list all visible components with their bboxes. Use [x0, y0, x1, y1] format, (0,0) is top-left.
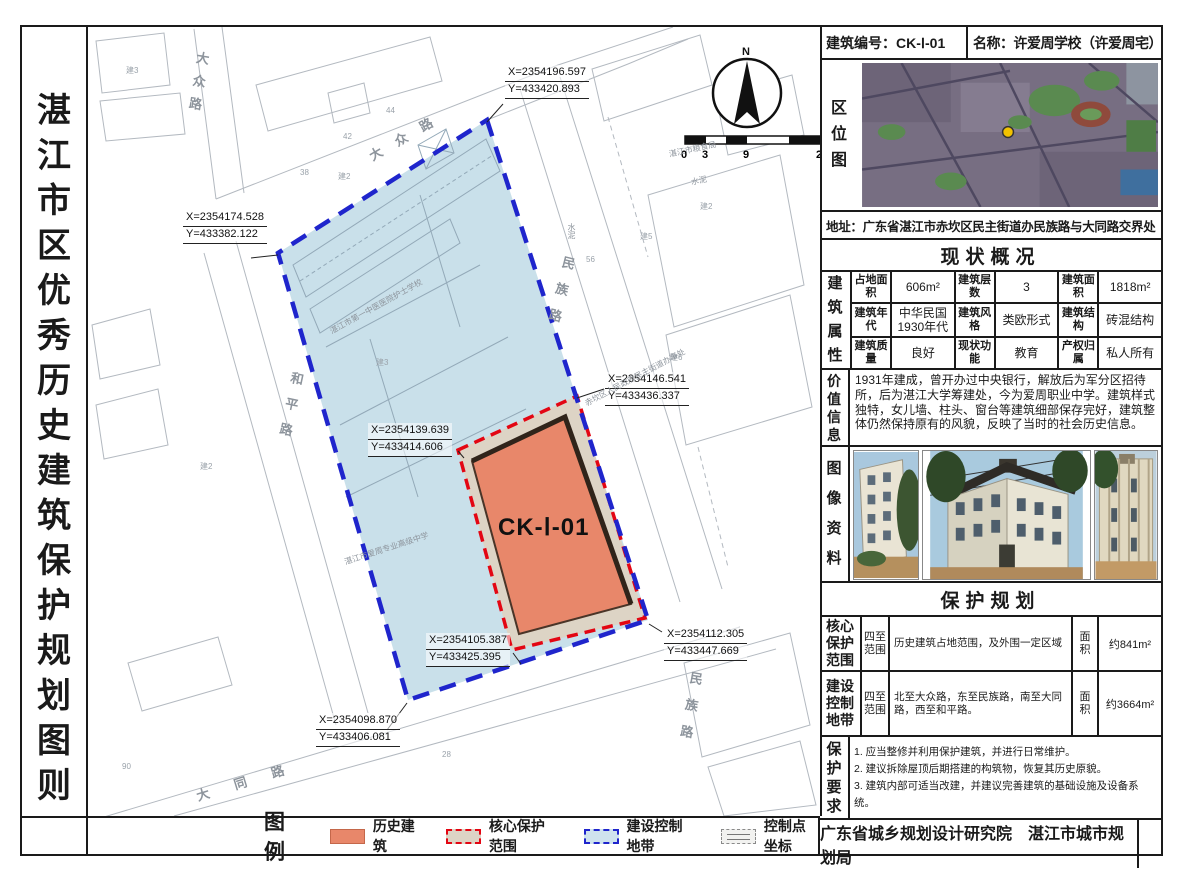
legend-item-core: 核心保护范围	[446, 816, 554, 856]
core-protection-swatch	[446, 829, 481, 844]
attr-label: 建筑面积	[1057, 272, 1097, 302]
svg-text:N: N	[742, 46, 750, 58]
coord-x: X=2354105.387	[426, 633, 510, 650]
attr-value: 1818m²	[1097, 272, 1161, 302]
north-arrow-icon: N	[713, 46, 781, 127]
coord-x: X=2354196.597	[505, 65, 589, 82]
attributes-grid: 占地面积 606m² 建筑层数 3 建筑面积 1818m² 建筑年代 中华民国1…	[850, 272, 1161, 368]
coord-y: Y=433414.606	[368, 440, 452, 457]
attr-label: 产权归属	[1057, 336, 1097, 368]
building-photo-3	[1094, 450, 1158, 580]
svg-text:90: 90	[122, 762, 131, 771]
status-title-row: 现状概况	[820, 240, 1161, 272]
control-zone-row: 建设控制地带 四至范围 北至大众路，东至民族路，南至大同路，西至和平路。 面积 …	[820, 672, 1161, 737]
footer-row: 广东省城乡规划设计研究院 湛江市城市规划局	[820, 820, 1161, 868]
svg-text:建5: 建5	[640, 231, 653, 241]
svg-text:建3: 建3	[376, 357, 389, 367]
attr-value: 类欧形式	[994, 302, 1058, 336]
attr-label: 建筑年代	[850, 302, 890, 336]
agency-names: 广东省城乡规划设计研究院 湛江市城市规划局	[820, 820, 1139, 868]
construction-control-swatch	[584, 829, 619, 844]
building-name: 名称：许爱周学校（许爱周宅）	[968, 27, 1161, 58]
legend-item-label: 核心保护范围	[489, 816, 554, 856]
core-protection-row: 核心保护范围 四至范围 历史建筑占地范围，及外围一定区域 面积 约841m²	[820, 617, 1161, 672]
svg-text:28: 28	[442, 750, 451, 759]
svg-text:建3: 建3	[126, 65, 139, 75]
title-column: 湛江市区优秀历史建筑保护规划图则	[22, 27, 88, 854]
legend-item-label: 建设控制地带	[627, 816, 692, 856]
coordinate-callout: X=2354196.597Y=433420.893	[505, 65, 589, 99]
control-area-value: 约3664m²	[1099, 672, 1161, 735]
attr-label: 建筑层数	[954, 272, 994, 302]
attributes-row: 建筑属性 占地面积 606m² 建筑层数 3 建筑面积 1818m² 建筑年代 …	[820, 272, 1161, 370]
footer-end-cell	[1139, 820, 1161, 868]
coord-y: Y=433447.669	[664, 644, 747, 661]
legend-item-label: 历史建筑	[373, 816, 416, 856]
protection-title-row: 保护规划	[820, 583, 1161, 617]
coord-y: Y=433425.395	[426, 650, 510, 667]
value-info-label: 价值信息	[820, 370, 850, 445]
building-number: 建筑编号：CK-Ⅰ-01	[820, 27, 968, 58]
coord-x: X=2354174.528	[183, 210, 267, 227]
building-photo-1	[853, 450, 919, 580]
address-row: 地址：广东省湛江市赤坎区民主街道办民族路与大同路交界处	[820, 212, 1161, 240]
svg-text:9: 9	[743, 149, 749, 161]
core-building-label: CK-Ⅰ-01	[498, 514, 589, 541]
coord-x: X=2354112.305	[664, 627, 747, 644]
attr-value: 教育	[994, 336, 1058, 368]
requirement-item: 1. 应当整修并利用保护建筑，并进行日常维护。	[854, 744, 1157, 761]
attr-value: 606m²	[890, 272, 954, 302]
images-row: 图像资料	[820, 447, 1161, 583]
coordinate-callout: X=2354139.639Y=433414.606	[368, 423, 452, 457]
legend-bar: 图例 历史建筑 核心保护范围 建设控制地带 控制点坐标	[88, 816, 820, 854]
address-text: 地址：广东省湛江市赤坎区民主街道办民族路与大同路交界处	[820, 216, 1161, 235]
attr-label: 建筑质量	[850, 336, 890, 368]
attr-label: 现状功能	[954, 336, 994, 368]
core-range-label: 四至范围	[862, 617, 890, 670]
legend-item-point: 控制点坐标	[721, 816, 818, 856]
attr-value: 砖混结构	[1097, 302, 1161, 336]
legend-item-historic: 历史建筑	[330, 816, 416, 856]
place-label-cement: 水泥	[566, 223, 577, 239]
sheet-title: 湛江市区优秀历史建筑保护规划图则	[22, 89, 86, 809]
svg-text:38: 38	[300, 168, 309, 177]
site-marker-dot	[1002, 127, 1013, 138]
status-title: 现状概况	[820, 240, 1161, 270]
core-area-value: 约841m²	[1099, 617, 1161, 670]
coord-x: X=2354139.639	[368, 423, 452, 440]
images-label: 图像资料	[820, 447, 850, 581]
attr-label: 建筑风格	[954, 302, 994, 336]
coord-y: Y=433420.893	[505, 82, 589, 99]
coordinate-callout: X=2354105.387Y=433425.395	[426, 633, 510, 667]
value-info-row: 价值信息 1931年建成，曾开办过中央银行，解放后为军分区招待所，后为湛江大学筹…	[820, 370, 1161, 447]
legend-item-control: 建设控制地带	[584, 816, 692, 856]
svg-text:42: 42	[343, 132, 352, 141]
map-canvas: CK-Ⅰ-01 N 0 3 9 21m 建3 建2	[88, 27, 822, 816]
coordinate-callout: X=2354112.305Y=433447.669	[664, 627, 747, 661]
core-range-text: 历史建筑占地范围，及外围一定区域	[890, 617, 1073, 670]
attr-label: 占地面积	[850, 272, 890, 302]
requirements-row: 保护要求 1. 应当整修并利用保护建筑，并进行日常维护。 2. 建议拆除屋顶后期…	[820, 737, 1161, 820]
info-panel: 建筑编号：CK-Ⅰ-01 名称：许爱周学校（许爱周宅） 区位图	[820, 27, 1161, 854]
coordinate-callout: X=2354098.870Y=433406.081	[316, 713, 400, 747]
control-range-name: 建设控制地带	[820, 672, 862, 735]
legend-item-label: 控制点坐标	[764, 816, 818, 856]
svg-text:建2: 建2	[200, 461, 213, 471]
location-map-row: 区位图	[820, 60, 1161, 212]
coord-y: Y=433382.122	[183, 227, 267, 244]
requirements-label: 保护要求	[820, 737, 850, 818]
panel-header-row: 建筑编号：CK-Ⅰ-01 名称：许爱周学校（许爱周宅）	[820, 27, 1161, 60]
core-range-name: 核心保护范围	[820, 617, 862, 670]
value-info-text: 1931年建成，曾开办过中央银行，解放后为军分区招待所，后为湛江大学筹建处，今为…	[850, 370, 1161, 445]
svg-text:建2: 建2	[700, 201, 713, 211]
attributes-row-header: 建筑属性	[820, 272, 850, 368]
control-range-label: 四至范围	[862, 672, 890, 735]
svg-text:44: 44	[386, 106, 395, 115]
attr-value: 良好	[890, 336, 954, 368]
coord-y: Y=433406.081	[316, 730, 400, 747]
attr-label: 建筑结构	[1057, 302, 1097, 336]
coordinate-callout: X=2354174.528Y=433382.122	[183, 210, 267, 244]
requirement-item: 2. 建议拆除屋顶后期搭建的构筑物，恢复其历史原貌。	[854, 761, 1157, 778]
building-photo-2	[922, 450, 1091, 580]
location-map-label: 区位图	[820, 60, 858, 210]
photo-strip	[850, 447, 1161, 581]
location-satellite-image	[858, 60, 1161, 210]
control-point-swatch	[721, 829, 755, 844]
protection-title: 保护规划	[820, 583, 1161, 615]
requirements-list: 1. 应当整修并利用保护建筑，并进行日常维护。 2. 建议拆除屋顶后期搭建的构筑…	[850, 737, 1161, 818]
svg-text:建2: 建2	[338, 171, 351, 181]
control-range-text: 北至大众路，东至民族路，南至大同路，西至和平路。	[890, 672, 1073, 735]
core-area-label: 面积	[1073, 617, 1099, 670]
legend-title: 图例	[264, 806, 300, 866]
plan-sheet: 湛江市区优秀历史建筑保护规划图则	[20, 25, 1163, 856]
control-area-label: 面积	[1073, 672, 1099, 735]
svg-text:56: 56	[586, 255, 595, 264]
attr-value: 3	[994, 272, 1058, 302]
attr-value: 中华民国1930年代	[890, 302, 954, 336]
plan-sheet-page: { "sheet": { "vertical_title": "湛江市区优秀历史…	[0, 0, 1184, 884]
title-column-divider	[22, 816, 86, 818]
historic-building-swatch	[330, 829, 364, 844]
requirement-item: 3. 建筑内部可适当改建，并建议完善建筑的基础设施及设备系统。	[854, 778, 1157, 812]
attr-value: 私人所有	[1097, 336, 1161, 368]
coord-x: X=2354098.870	[316, 713, 400, 730]
